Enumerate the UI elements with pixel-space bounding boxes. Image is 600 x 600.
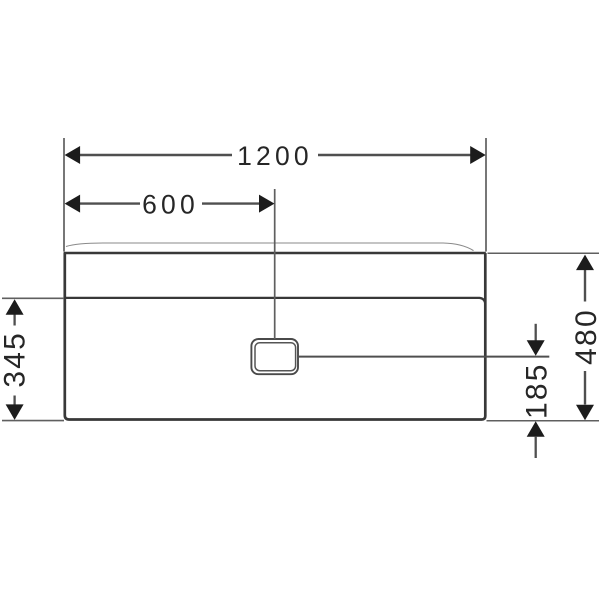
svg-text:1200: 1200	[237, 141, 313, 171]
svg-text:480: 480	[570, 308, 600, 365]
svg-text:345: 345	[0, 331, 31, 388]
svg-text:185: 185	[521, 362, 554, 419]
svg-text:600: 600	[142, 190, 199, 220]
